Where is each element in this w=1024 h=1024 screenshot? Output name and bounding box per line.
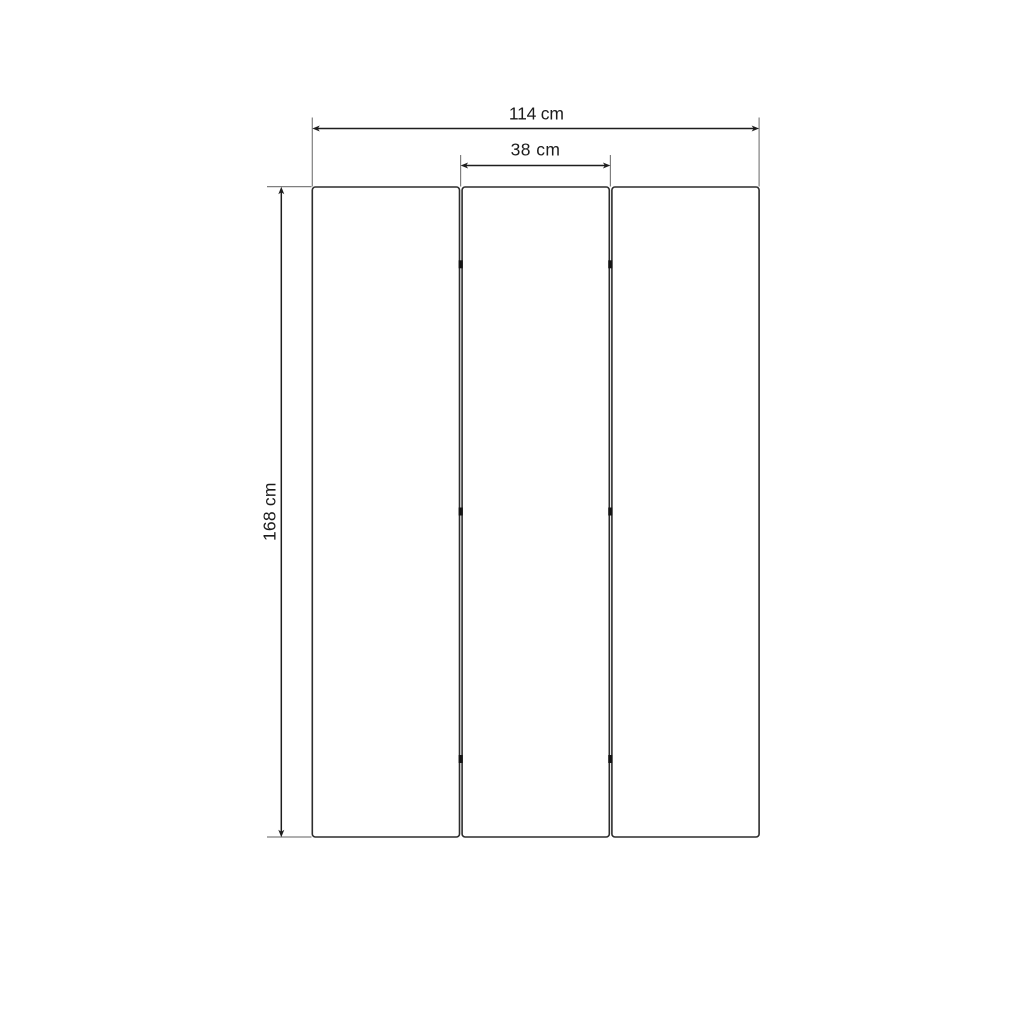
svg-text:168 cm: 168 cm xyxy=(260,482,280,541)
svg-text:38 cm: 38 cm xyxy=(511,139,561,159)
svg-text:114 cm: 114 cm xyxy=(509,104,564,124)
